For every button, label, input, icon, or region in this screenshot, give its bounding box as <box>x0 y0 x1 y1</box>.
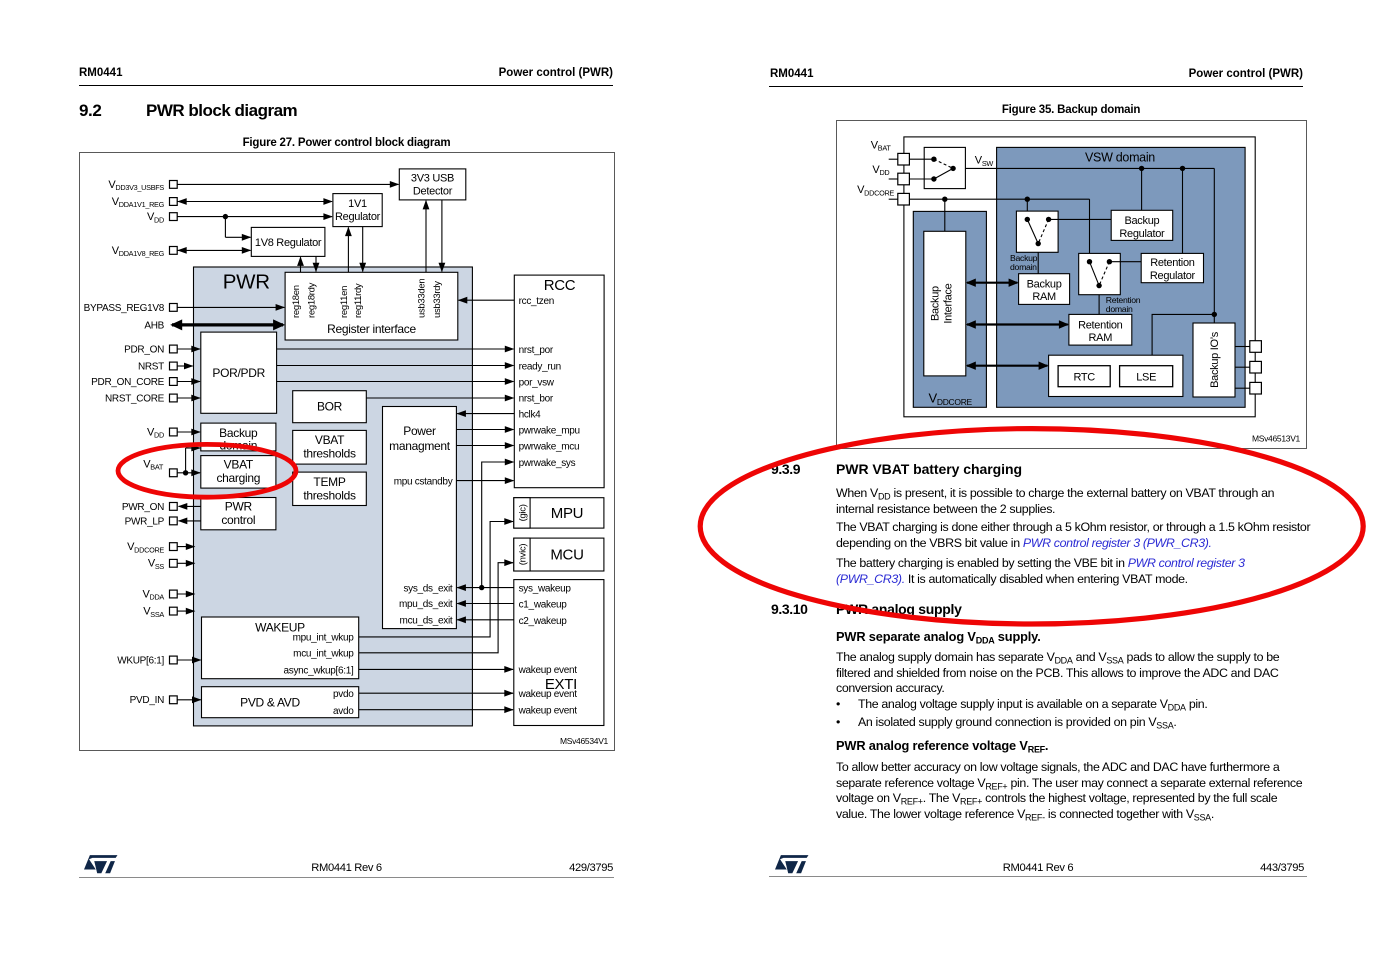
svg-text:reg11en: reg11en <box>339 286 350 318</box>
svg-text:VDDA: VDDA <box>142 588 164 601</box>
svg-text:Register interface: Register interface <box>327 322 416 336</box>
svg-text:RAM: RAM <box>1032 291 1056 303</box>
svg-text:mcu_int_wkup: mcu_int_wkup <box>293 648 354 659</box>
svg-text:managment: managment <box>389 439 451 453</box>
svg-text:Regulator: Regulator <box>1150 270 1196 282</box>
svg-text:c1_wakeup: c1_wakeup <box>519 599 568 610</box>
svg-text:PVD & AVD: PVD & AVD <box>240 695 300 709</box>
svg-text:PVD_IN: PVD_IN <box>130 695 164 706</box>
svg-text:usb33rdy: usb33rdy <box>432 281 443 318</box>
svg-text:AHB: AHB <box>144 320 164 331</box>
svg-text:wakeup event: wakeup event <box>518 665 578 676</box>
svg-text:LSE: LSE <box>1136 371 1156 383</box>
svg-text:VDDA1V8_REG: VDDA1V8_REG <box>112 245 165 258</box>
svg-text:charging: charging <box>216 471 260 485</box>
svg-text:Power: Power <box>403 424 436 438</box>
svg-text:wakeup event: wakeup event <box>518 689 578 700</box>
svg-text:VDDCORE: VDDCORE <box>127 541 164 554</box>
svg-text:Retention: Retention <box>1150 257 1195 269</box>
svg-text:por_vsw: por_vsw <box>519 377 555 388</box>
svg-text:VSW domain: VSW domain <box>1085 151 1155 165</box>
svg-text:Detector: Detector <box>413 186 453 198</box>
svg-text:VDDA1V1_REG: VDDA1V1_REG <box>112 196 165 209</box>
svg-text:usb33den: usb33den <box>416 279 427 318</box>
svg-text:PWR_ON: PWR_ON <box>122 502 164 513</box>
svg-text:Backup IO’s: Backup IO’s <box>1209 331 1221 388</box>
svg-text:mpu cstandby: mpu cstandby <box>394 476 453 487</box>
svg-text:Interface: Interface <box>943 283 955 323</box>
svg-text:PWR: PWR <box>225 500 253 514</box>
svg-text:VDD: VDD <box>872 164 889 177</box>
svg-text:sys_wakeup: sys_wakeup <box>519 583 572 594</box>
svg-text:RCC: RCC <box>544 277 576 294</box>
svg-text:nrst_por: nrst_por <box>519 345 554 356</box>
svg-text:domain: domain <box>220 438 258 452</box>
svg-text:MCU: MCU <box>550 547 583 564</box>
svg-text:Backup: Backup <box>1124 215 1159 227</box>
svg-text:pwrwake_mcu: pwrwake_mcu <box>519 441 580 452</box>
svg-text:thresholds: thresholds <box>303 489 356 503</box>
svg-text:Regulator: Regulator <box>1119 228 1165 240</box>
svg-text:PDR_ON: PDR_ON <box>124 344 164 355</box>
svg-text:sys_ds_exit: sys_ds_exit <box>403 583 452 594</box>
svg-text:(gic): (gic) <box>518 504 529 521</box>
svg-text:VSS: VSS <box>148 558 165 571</box>
svg-text:NRST_CORE: NRST_CORE <box>105 393 165 404</box>
svg-text:WKUP[6:1]: WKUP[6:1] <box>117 655 164 666</box>
svg-text:MSv46513V1: MSv46513V1 <box>1252 434 1301 444</box>
svg-text:MSv46534V1: MSv46534V1 <box>560 736 609 746</box>
svg-text:1V1: 1V1 <box>348 198 367 210</box>
svg-text:pwrwake_sys: pwrwake_sys <box>519 458 576 469</box>
svg-text:mpu_ds_exit: mpu_ds_exit <box>399 599 453 610</box>
svg-text:reg18rdy: reg18rdy <box>307 282 318 318</box>
svg-text:VDDCORE: VDDCORE <box>857 184 894 197</box>
svg-text:nrst_bor: nrst_bor <box>519 394 554 405</box>
svg-text:mcu_ds_exit: mcu_ds_exit <box>400 615 453 626</box>
svg-text:VBAT: VBAT <box>315 433 345 447</box>
svg-text:PWR_LP: PWR_LP <box>125 516 165 527</box>
svg-text:Backup: Backup <box>1027 279 1062 291</box>
svg-text:VBAT: VBAT <box>224 457 254 471</box>
svg-text:VDD3V3_USBFS: VDD3V3_USBFS <box>108 179 164 192</box>
svg-text:reg18en: reg18en <box>291 285 302 318</box>
svg-text:NRST: NRST <box>138 361 164 372</box>
svg-text:async_wkup[6:1]: async_wkup[6:1] <box>284 666 355 677</box>
svg-text:BYPASS_REG1V8: BYPASS_REG1V8 <box>84 303 165 314</box>
svg-text:mpu_int_wkup: mpu_int_wkup <box>293 633 355 644</box>
svg-text:pwrwake_mpu: pwrwake_mpu <box>519 425 580 436</box>
svg-text:wakeup event: wakeup event <box>518 706 578 717</box>
svg-text:3V3 USB: 3V3 USB <box>411 173 454 185</box>
svg-text:VBAT: VBAT <box>871 139 892 152</box>
svg-text:pvdo: pvdo <box>333 689 354 700</box>
svg-text:control: control <box>221 513 255 527</box>
svg-text:PWR: PWR <box>223 271 270 294</box>
svg-text:TEMP: TEMP <box>313 475 345 489</box>
svg-text:PDR_ON_CORE: PDR_ON_CORE <box>91 377 164 388</box>
svg-text:VSSA: VSSA <box>143 606 164 619</box>
svg-text:Backup: Backup <box>930 286 942 321</box>
svg-text:Regulator: Regulator <box>335 211 381 223</box>
svg-text:hclk4: hclk4 <box>519 409 542 420</box>
svg-text:rcc_tzen: rcc_tzen <box>519 296 554 307</box>
svg-text:thresholds: thresholds <box>303 447 356 461</box>
svg-text:1V8 Regulator: 1V8 Regulator <box>255 237 322 249</box>
svg-text:RTC: RTC <box>1073 371 1095 383</box>
svg-text:domain: domain <box>1010 262 1037 272</box>
svg-text:avdo: avdo <box>333 706 354 717</box>
svg-text:POR/PDR: POR/PDR <box>212 366 265 380</box>
svg-text:(nvic): (nvic) <box>518 544 529 566</box>
svg-text:VDD: VDD <box>147 211 164 224</box>
svg-text:c2_wakeup: c2_wakeup <box>519 616 568 627</box>
svg-text:VBAT: VBAT <box>143 458 164 471</box>
svg-text:Retention: Retention <box>1078 319 1123 331</box>
svg-text:ready_run: ready_run <box>519 361 561 372</box>
svg-text:MPU: MPU <box>551 505 583 522</box>
svg-text:RAM: RAM <box>1089 332 1113 344</box>
svg-text:domain: domain <box>1106 304 1133 314</box>
svg-text:reg11rdy: reg11rdy <box>353 283 364 318</box>
svg-text:BOR: BOR <box>317 399 343 413</box>
svg-text:VDD: VDD <box>147 426 164 439</box>
